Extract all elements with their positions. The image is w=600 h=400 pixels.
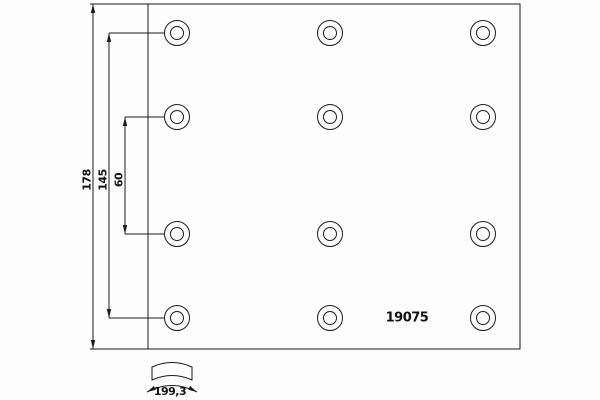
dimension-label-outer-spacing: 145 [97,169,110,190]
rivet-hole [471,222,496,247]
rivet-hole-grid [165,21,496,331]
rivet-hole [165,105,190,130]
rivet-hole [471,306,496,331]
rivet-hole [318,21,343,46]
dimension-label-inner-spacing: 60 [113,172,126,187]
lining-plate-outline [148,4,520,349]
rivet-hole [471,21,496,46]
rivet-hole [318,105,343,130]
dimension-label-total-height: 178 [81,169,94,190]
rivet-hole [471,105,496,130]
rivet-hole [165,306,190,331]
rivet-hole [318,306,343,331]
rivet-hole [318,222,343,247]
lining-curvature-symbol [152,363,192,381]
drawing-canvas: 178 145 60 19075 199,3 [0,0,600,400]
rivet-hole [165,222,190,247]
part-number: 19075 [386,311,429,326]
technical-drawing: 178 145 60 19075 199,3 [0,0,600,400]
arc-dimension-label: 199,3 [154,385,186,398]
rivet-hole [165,21,190,46]
